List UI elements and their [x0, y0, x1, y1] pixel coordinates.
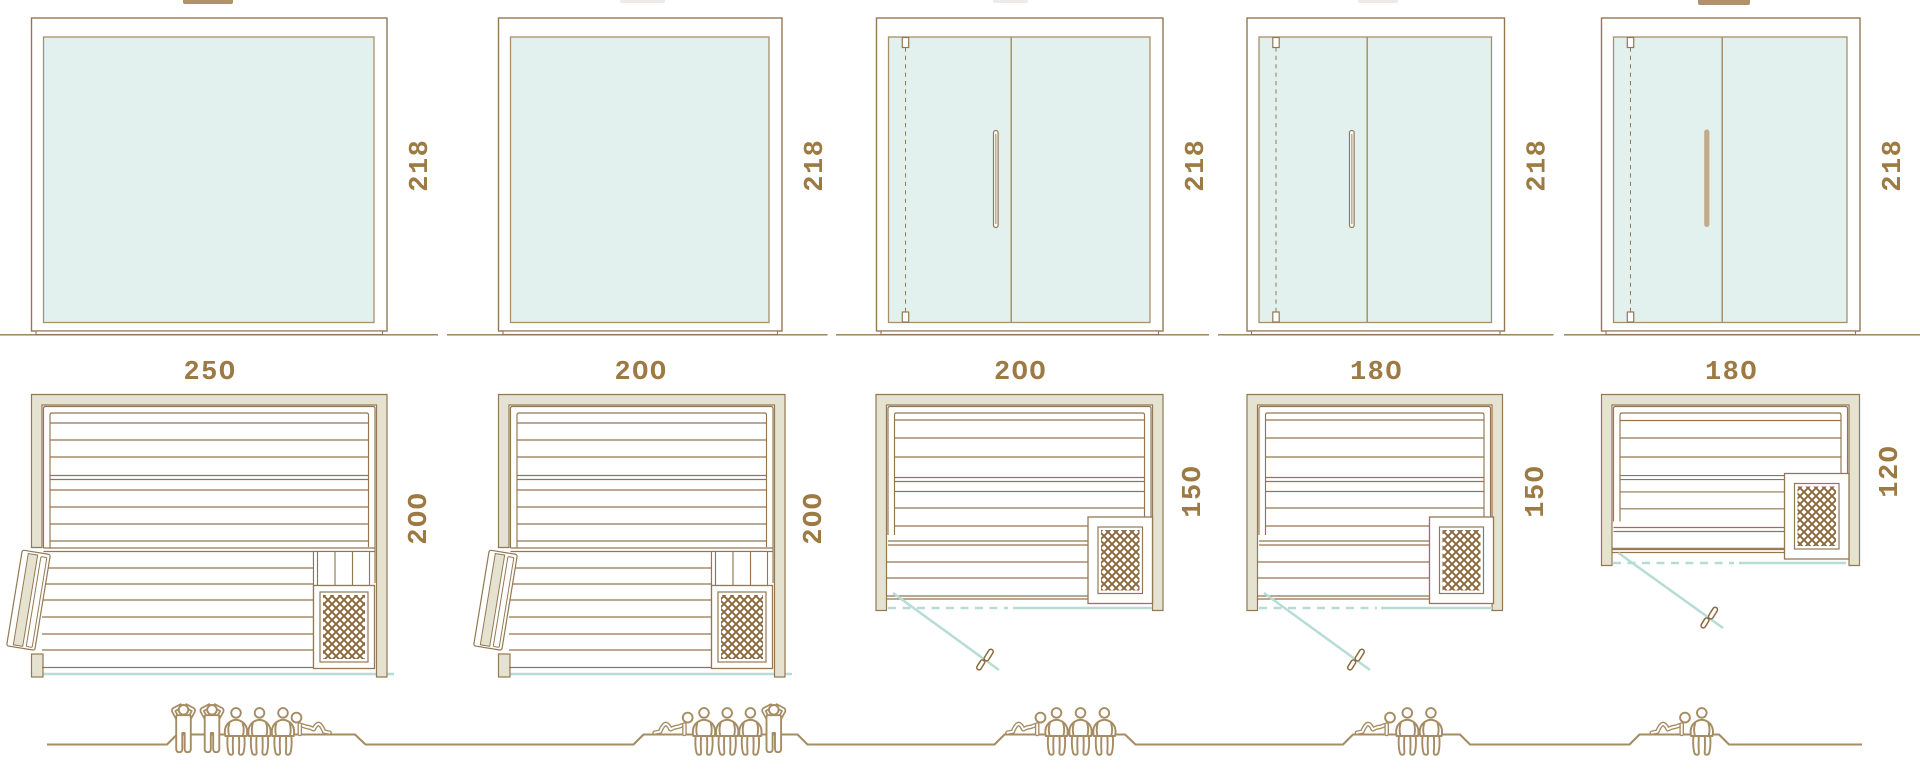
svg-text:218: 218 [1879, 139, 1909, 192]
svg-text:218: 218 [801, 139, 831, 192]
svg-text:18O: 18O [1350, 358, 1403, 388]
svg-text:15O: 15O [1522, 465, 1552, 518]
svg-text:218: 218 [1524, 139, 1554, 192]
svg-text:2OO: 2OO [800, 492, 830, 545]
svg-text:218: 218 [406, 139, 436, 192]
svg-text:2OO: 2OO [614, 358, 667, 388]
svg-text:12O: 12O [1876, 445, 1906, 498]
svg-text:218: 218 [1182, 139, 1212, 192]
svg-text:25O: 25O [183, 358, 236, 388]
svg-text:15O: 15O [1179, 465, 1209, 518]
svg-text:2OO: 2OO [994, 358, 1047, 388]
svg-text:18O: 18O [1705, 358, 1758, 388]
svg-text:2OO: 2OO [405, 492, 435, 545]
